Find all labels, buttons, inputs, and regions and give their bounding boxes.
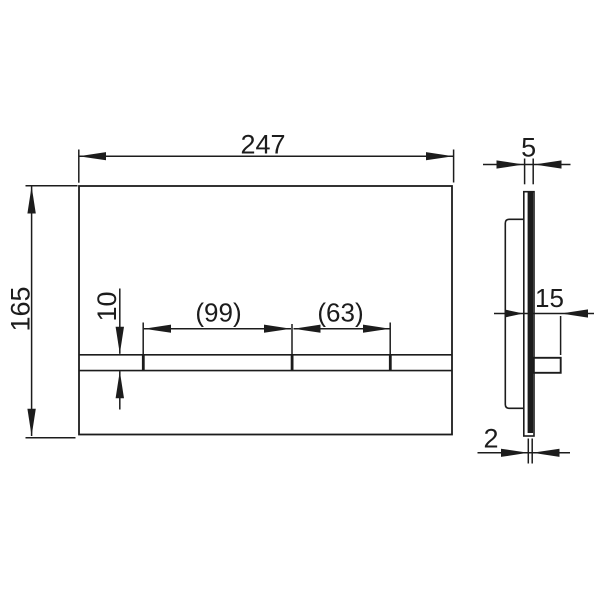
svg-text:247: 247 [240, 130, 285, 160]
svg-text:10: 10 [92, 291, 122, 321]
svg-text:(99): (99) [195, 298, 241, 328]
svg-text:2: 2 [483, 424, 498, 454]
svg-text:5: 5 [521, 133, 536, 163]
svg-text:165: 165 [6, 286, 36, 331]
svg-text:(63): (63) [317, 298, 363, 328]
svg-text:15: 15 [535, 283, 564, 313]
